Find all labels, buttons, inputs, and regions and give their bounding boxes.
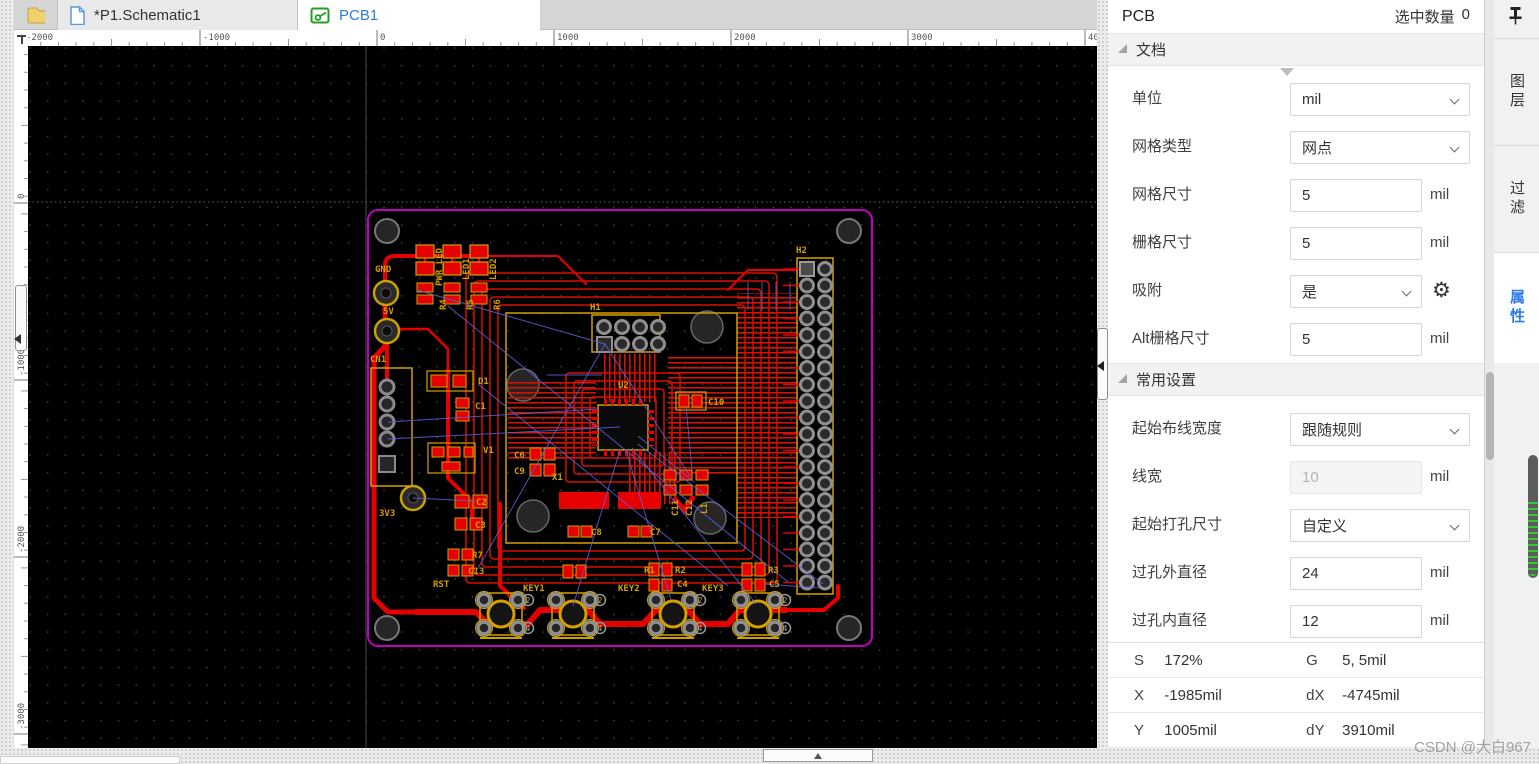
- svg-text:4: 4: [598, 624, 603, 633]
- svg-text:KEY3: KEY3: [702, 584, 724, 594]
- panel-header: PCB 选中数量 0: [1108, 0, 1484, 33]
- watermark: CSDN @大白967: [1414, 736, 1531, 757]
- svg-text:C9: C9: [514, 467, 525, 477]
- svg-text:LED2: LED2: [489, 258, 499, 280]
- unit-label: mil: [1430, 453, 1449, 501]
- property-label: 栅格尺寸: [1132, 219, 1192, 267]
- svg-text:GND: GND: [375, 265, 392, 275]
- panel-collapse-handle[interactable]: [1097, 328, 1108, 400]
- tab-schematic[interactable]: *P1.Schematic1: [58, 0, 298, 30]
- svg-text:-2000: -2000: [28, 33, 53, 43]
- line-width-input: 10: [1290, 461, 1422, 494]
- page-scrollbar-thumb[interactable]: [1528, 455, 1538, 578]
- select-value: 跟随规则: [1302, 419, 1458, 440]
- svg-text:0: 0: [380, 33, 385, 43]
- grid-size-input[interactable]: 5: [1290, 179, 1422, 212]
- svg-text:X1: X1: [552, 473, 563, 483]
- unit-select[interactable]: mil: [1290, 83, 1470, 116]
- svg-text:C2: C2: [476, 498, 487, 508]
- unit-label: mil: [1430, 597, 1449, 645]
- property-row-snap: 吸附是⚙: [1108, 267, 1484, 315]
- svg-text:R6: R6: [493, 299, 503, 310]
- svg-text:PWR_LED: PWR_LED: [435, 247, 445, 286]
- select-value: 网点: [1302, 137, 1458, 158]
- svg-text:4: 4: [698, 624, 703, 633]
- svg-text:C4: C4: [677, 580, 688, 590]
- section-title: 文档: [1136, 39, 1166, 60]
- pcb-doc-icon: [310, 7, 330, 24]
- svg-text:CN1: CN1: [370, 355, 386, 365]
- side-tab-layers[interactable]: 图层: [1494, 38, 1539, 145]
- svg-text:1000: 1000: [557, 33, 579, 43]
- ruler-corner: [14, 30, 28, 46]
- gear-icon[interactable]: ⚙: [1432, 276, 1451, 306]
- svg-text:0: 0: [17, 194, 27, 199]
- section-collapse-icon: [1118, 44, 1127, 53]
- tab-schematic-label: *P1.Schematic1: [94, 7, 201, 24]
- unit-label: mil: [1430, 315, 1449, 363]
- alt-grid-size-input[interactable]: 5: [1290, 323, 1422, 356]
- svg-text:R7: R7: [472, 551, 483, 561]
- property-label: 单位: [1132, 75, 1162, 123]
- svg-text:2: 2: [526, 596, 531, 605]
- svg-text:KEY1: KEY1: [523, 584, 545, 594]
- svg-text:5V: 5V: [383, 307, 394, 317]
- unit-label: mil: [1430, 171, 1449, 219]
- property-label: 过孔外直径: [1132, 549, 1207, 597]
- status-row: S172%G5, 5mil: [1108, 643, 1484, 678]
- svg-text:3V3: 3V3: [379, 509, 395, 519]
- svg-text:R5: R5: [466, 299, 476, 310]
- svg-text:R4: R4: [439, 299, 449, 310]
- property-label: 网格类型: [1132, 123, 1192, 171]
- selected-count-value: 0: [1462, 6, 1470, 27]
- property-row-via-inner-diameter: 过孔内直径12mil: [1108, 597, 1484, 645]
- schematic-doc-icon: [70, 6, 85, 25]
- property-label: Alt栅格尺寸: [1132, 315, 1210, 363]
- pin-icon[interactable]: [1506, 6, 1525, 30]
- left-gutter: [0, 0, 14, 764]
- property-row-line-width: 线宽10mil: [1108, 453, 1484, 501]
- property-row-snap-size: 栅格尺寸5mil: [1108, 219, 1484, 267]
- svg-text:KEY2: KEY2: [618, 584, 640, 594]
- property-label: 网格尺寸: [1132, 171, 1192, 219]
- svg-text:LED1: LED1: [462, 258, 472, 280]
- ruler-vertical: 0-1000-2000-3000: [14, 46, 28, 748]
- svg-text:R3: R3: [768, 566, 779, 576]
- grid-type-select[interactable]: 网点: [1290, 131, 1470, 164]
- svg-text:L1: L1: [700, 503, 710, 514]
- side-tab-properties[interactable]: 属性: [1494, 252, 1539, 363]
- property-label: 过孔内直径: [1132, 597, 1207, 645]
- led-components: [416, 245, 488, 304]
- side-tab-filter[interactable]: 过滤: [1494, 145, 1539, 252]
- section-header[interactable]: 文档: [1108, 33, 1484, 66]
- select-value: mil: [1302, 91, 1458, 108]
- svg-text:4: 4: [783, 624, 788, 633]
- svg-text:2: 2: [783, 596, 788, 605]
- snap-size-input[interactable]: 5: [1290, 227, 1422, 260]
- svg-text:-3000: -3000: [17, 703, 27, 730]
- svg-text:C10: C10: [708, 398, 724, 408]
- tab-pcb-label: PCB1: [339, 7, 378, 24]
- svg-text:C11: C11: [671, 500, 681, 516]
- property-row-grid-size: 网格尺寸5mil: [1108, 171, 1484, 219]
- svg-text:C7: C7: [650, 528, 661, 538]
- ruler-horizontal: -2000-100001000200030004000: [28, 30, 1097, 46]
- unit-label: mil: [1430, 219, 1449, 267]
- left-collapse-handle[interactable]: [15, 285, 27, 351]
- via-size-mode-select[interactable]: 自定义: [1290, 509, 1470, 542]
- unit-label: mil: [1430, 549, 1449, 597]
- svg-text:-1000: -1000: [203, 33, 230, 43]
- route-width-mode-select[interactable]: 跟随规则: [1290, 413, 1470, 446]
- svg-text:C12: C12: [685, 500, 695, 516]
- svg-text:C3: C3: [475, 521, 486, 531]
- property-label: 起始打孔尺寸: [1132, 501, 1222, 549]
- home-folder-tab[interactable]: [14, 0, 58, 30]
- via-inner-diameter-input[interactable]: 12: [1290, 605, 1422, 638]
- svg-text:2000: 2000: [734, 33, 756, 43]
- status-row: X-1985mildX-4745mil: [1108, 678, 1484, 713]
- svg-text:C8: C8: [591, 528, 602, 538]
- select-value: 自定义: [1302, 515, 1458, 536]
- svg-text:U2: U2: [618, 381, 629, 391]
- svg-text:RST: RST: [433, 580, 450, 590]
- property-row-via-outer-diameter: 过孔外直径24mil: [1108, 549, 1484, 597]
- property-label: 线宽: [1132, 453, 1162, 501]
- svg-text:4000: 4000: [1088, 33, 1097, 43]
- app-window: *P1.Schematic1 PCB1 -2000-10000100020003…: [0, 0, 1539, 764]
- svg-text:C5: C5: [769, 580, 780, 590]
- svg-text:R2: R2: [675, 566, 686, 576]
- panel-scrollbar-thumb[interactable]: [1486, 372, 1494, 460]
- svg-text:D1: D1: [478, 377, 489, 387]
- property-row-alt-grid-size: Alt栅格尺寸5mil: [1108, 315, 1484, 363]
- section-collapse-icon: [1118, 374, 1127, 383]
- svg-text:C13: C13: [468, 567, 484, 577]
- property-row-unit: 单位mil: [1108, 75, 1484, 123]
- via-outer-diameter-input[interactable]: 24: [1290, 557, 1422, 590]
- svg-text:2: 2: [598, 596, 603, 605]
- status-bar: S172%G5, 5milX-1985mildX-4745milY1005mil…: [1108, 642, 1484, 748]
- svg-text:4: 4: [526, 624, 531, 633]
- collapse-arrow-icon[interactable]: [1280, 68, 1294, 76]
- tab-pcb[interactable]: PCB1: [298, 0, 540, 30]
- section-header[interactable]: 常用设置: [1108, 363, 1484, 396]
- property-row-via-size-mode: 起始打孔尺寸自定义: [1108, 501, 1484, 549]
- folder-icon: [26, 5, 45, 25]
- svg-text:-2000: -2000: [17, 526, 27, 553]
- panel-sections: 文档单位mil网格类型网点网格尺寸5mil栅格尺寸5mil吸附是⚙Alt栅格尺寸…: [1108, 33, 1484, 645]
- svg-text:H2: H2: [796, 246, 807, 256]
- svg-text:2: 2: [698, 596, 703, 605]
- horizontal-scrollbar-thumb[interactable]: [763, 749, 873, 762]
- document-tab-bar: *P1.Schematic1 PCB1: [14, 0, 1097, 30]
- side-tab-column: 图层 过滤 属性: [1494, 0, 1539, 748]
- svg-text:-1000: -1000: [17, 349, 27, 376]
- svg-text:H1: H1: [590, 303, 601, 313]
- svg-text:C6: C6: [514, 451, 525, 461]
- pcb-canvas[interactable]: 24242424 GND5VCN13V3D1V1C1C2C3R7C13RSTKE…: [28, 46, 1097, 748]
- bottom-left-box: [0, 756, 180, 764]
- section-title: 常用设置: [1136, 369, 1196, 390]
- properties-panel: PCB 选中数量 0 文档单位mil网格类型网点网格尺寸5mil栅格尺寸5mil…: [1108, 0, 1484, 748]
- panel-title: PCB: [1122, 8, 1155, 26]
- property-label: 吸附: [1132, 267, 1162, 315]
- svg-text:3000: 3000: [911, 33, 933, 43]
- property-row-grid-type: 网格类型网点: [1108, 123, 1484, 171]
- svg-text:C1: C1: [475, 402, 486, 412]
- property-row-route-width-mode: 起始布线宽度跟随规则: [1108, 405, 1484, 453]
- svg-text:R1: R1: [644, 566, 655, 576]
- selected-count-label: 选中数量: [1395, 6, 1455, 27]
- select-value: 是: [1302, 281, 1410, 302]
- snap-select[interactable]: 是: [1290, 275, 1422, 308]
- svg-text:V1: V1: [483, 446, 494, 456]
- property-label: 起始布线宽度: [1132, 405, 1222, 453]
